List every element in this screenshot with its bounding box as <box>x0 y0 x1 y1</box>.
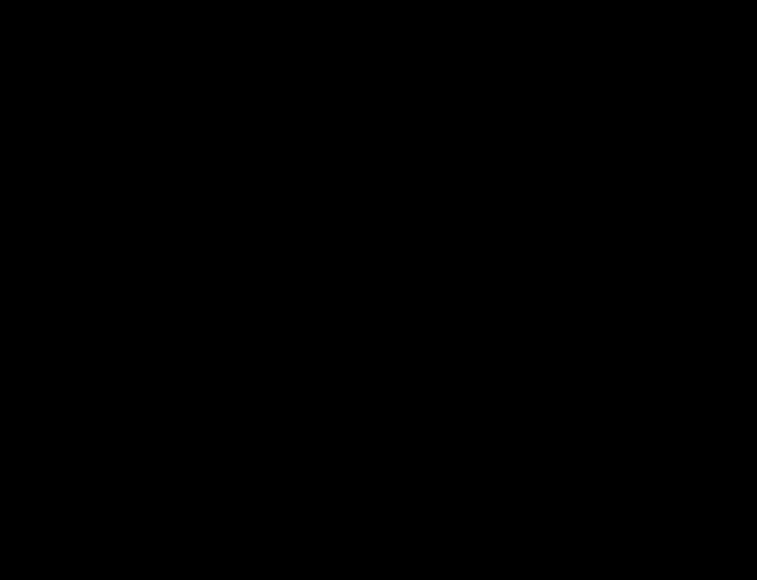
boardview-canvas <box>0 0 757 580</box>
motherboard-diagram <box>0 0 757 580</box>
